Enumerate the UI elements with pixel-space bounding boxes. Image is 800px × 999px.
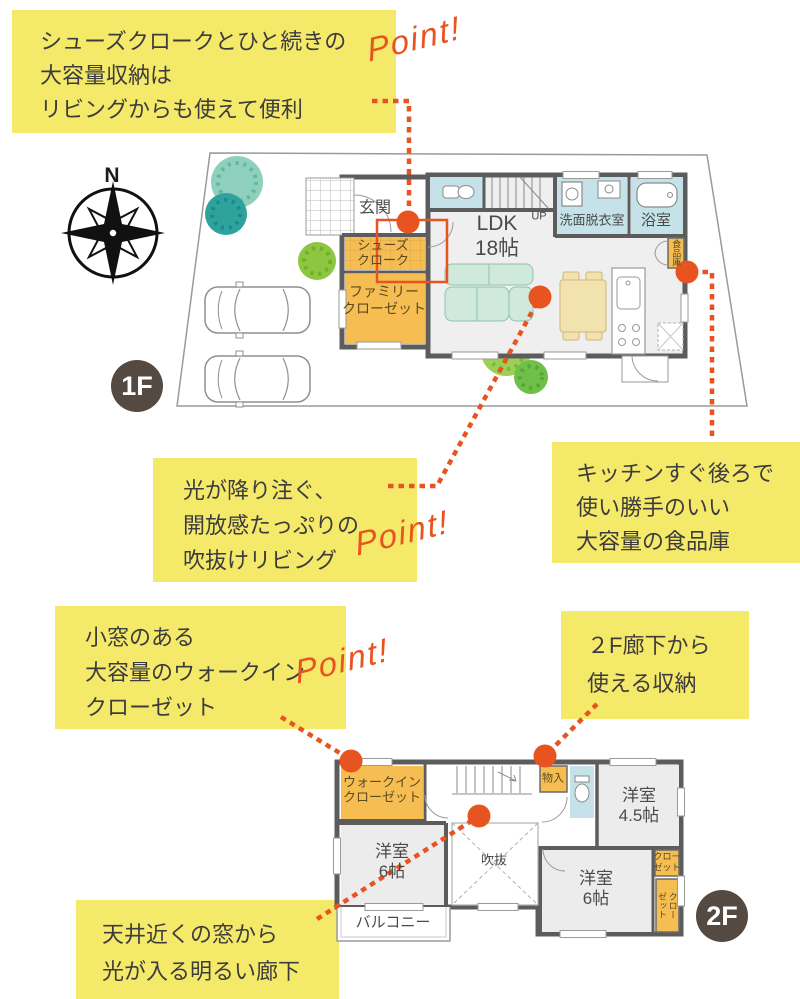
note-line: 光が降り注ぐ、 [183, 473, 417, 508]
label-line: 洋室 [579, 869, 613, 889]
site-boundary-1f [177, 153, 747, 406]
room-label-family-closet: ファミリー クローゼット [342, 283, 426, 316]
note-line: ２F廊下から [587, 627, 749, 665]
label-line: クローゼット [343, 790, 421, 805]
label-line: 18帖 [475, 237, 519, 262]
label-line: ゼット [653, 862, 680, 873]
note-line: 光が入る明るい廊下 [102, 953, 339, 990]
label-line: シューズ [357, 238, 409, 253]
label-line: 4.5帖 [619, 806, 660, 826]
label-line: 洋室 [375, 842, 409, 862]
room-label-ldk: LDK 18帖 [475, 212, 519, 262]
room-label-void: 吹抜 [481, 852, 507, 867]
room-label-storage: 物入 [542, 773, 564, 786]
room-label-bath: 浴室 [641, 212, 671, 230]
label-line: 6帖 [579, 889, 613, 909]
room-label-room45: 洋室 4.5帖 [619, 786, 660, 826]
floor1-badge-label: 1F [121, 371, 153, 402]
note-pantry: キッチンすぐ後ろで 使い勝手のいい 大容量の食品庫 [552, 442, 800, 563]
note-line: リビングからも使えて便利 [40, 93, 396, 127]
note-shoe-cloak: シューズクロークとひと続きの 大容量収納は リビングからも使えて便利 [12, 10, 396, 133]
compass-north-label: N [104, 164, 119, 188]
kitchen-counter-icon [612, 268, 683, 354]
floorplan-flyer: シューズクロークとひと続きの 大容量収納は リビングからも使えて便利 光が降り注… [0, 0, 800, 999]
compass-rose-icon [61, 181, 165, 285]
note-line: キッチンすぐ後ろで [576, 457, 800, 491]
label-line: 洋室 [619, 786, 660, 806]
label-line: ウォークイン [343, 775, 421, 790]
note-bright-hallway: 天井近くの窓から 光が入る明るい廊下 [76, 900, 339, 999]
dining-table-icon [560, 272, 606, 340]
floor1-badge: 1F [111, 360, 163, 412]
floor2-badge: 2F [696, 890, 748, 942]
note-line: 天井近くの窓から [102, 916, 339, 953]
note-line: 使える収納 [587, 665, 749, 703]
note-line: 使い勝手のいい [576, 491, 800, 525]
label-line: クロー [653, 851, 680, 862]
note-line: 大容量収納は [40, 59, 396, 93]
label-line: クローク [357, 253, 409, 268]
room-label-balcony: バルコニー [356, 914, 431, 932]
room-label-washroom: 洗面脱衣室 [559, 212, 624, 227]
room-label-pantry: 食品庫 [671, 240, 682, 267]
note-2f-storage: ２F廊下から 使える収納 [561, 611, 749, 719]
sofa-icon [445, 264, 533, 321]
room-label-closet-tall: クローゼット [656, 888, 677, 922]
label-line: クローゼット [342, 300, 426, 317]
label-line: 6帖 [375, 862, 409, 882]
note-line: 大容量の食品庫 [576, 525, 800, 559]
room-label-room6-right: 洋室 6帖 [579, 869, 613, 909]
stairs-up-label: UP [531, 211, 546, 224]
room-label-closet-small: クロー ゼット [653, 851, 680, 872]
note-line: クローゼット [85, 690, 346, 725]
note-line: シューズクロークとひと続きの [40, 25, 396, 59]
label-line: ファミリー [342, 283, 426, 300]
room-label-wic: ウォークイン クローゼット [343, 775, 421, 806]
back-porch [622, 356, 668, 382]
tree-icons [205, 156, 548, 394]
floor2-badge-label: 2F [706, 901, 738, 932]
room-label-genkan: 玄関 [359, 200, 391, 219]
room-label-room6-left: 洋室 6帖 [375, 842, 409, 882]
label-line: LDK [475, 212, 519, 237]
room-label-shoes-cloak: シューズ クローク [357, 238, 409, 269]
